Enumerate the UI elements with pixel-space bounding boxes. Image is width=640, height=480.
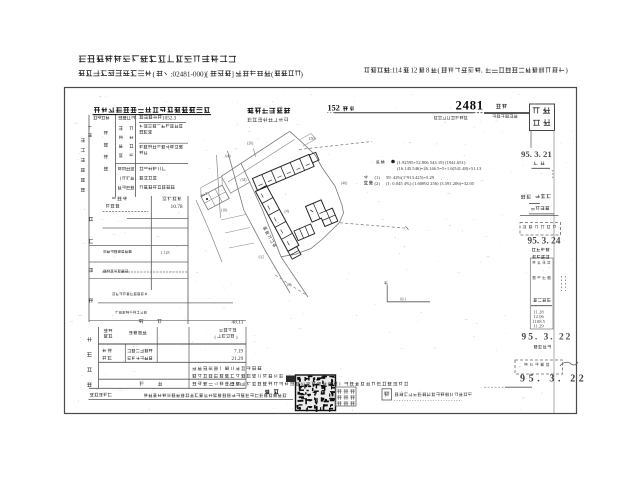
svg-text:(6): (6) bbox=[287, 283, 292, 287]
svg-text:152: 152 bbox=[328, 104, 340, 113]
svg-text:(1.92595+52.806 543.19) (1941.: (1.92595+52.806 543.19) (1941.651) bbox=[397, 160, 466, 165]
svg-text:8: 8 bbox=[426, 68, 430, 75]
svg-text:615: 615 bbox=[259, 256, 265, 260]
svg-text:150: 150 bbox=[309, 136, 315, 141]
svg-text:(2): (2) bbox=[375, 181, 381, 186]
svg-text:12: 12 bbox=[411, 68, 418, 75]
svg-text:7.19: 7.19 bbox=[234, 348, 243, 354]
svg-text:(34): (34) bbox=[241, 178, 248, 182]
svg-text:11.29: 11.29 bbox=[534, 324, 545, 329]
svg-text:,: , bbox=[481, 68, 483, 75]
svg-text:42.19: 42.19 bbox=[229, 382, 241, 388]
svg-text:60.1: 60.1 bbox=[400, 298, 406, 302]
svg-text:640: 640 bbox=[225, 155, 231, 159]
svg-text::02481-000)[: :02481-000)[ bbox=[171, 70, 210, 78]
svg-text:95. 3. 22: 95. 3. 22 bbox=[520, 374, 587, 385]
svg-text:(40): (40) bbox=[341, 182, 348, 186]
svg-text:95. 3. 22: 95. 3. 22 bbox=[522, 332, 573, 342]
svg-text:59. 42%(1°913.425)=5.29: 59. 42%(1°913.425)=5.29 bbox=[386, 175, 435, 180]
svg-text:(4): (4) bbox=[285, 210, 290, 214]
svg-text:21.29: 21.29 bbox=[232, 356, 244, 362]
svg-text:(18): (18) bbox=[221, 209, 228, 213]
svg-text:95. 3. 21: 95. 3. 21 bbox=[521, 149, 552, 159]
svg-text:(1): (1) bbox=[375, 175, 381, 180]
svg-text:10.78: 10.78 bbox=[171, 204, 183, 210]
svg-text:): ) bbox=[566, 68, 568, 75]
svg-text:1052.3: 1052.3 bbox=[162, 116, 177, 122]
svg-text:(16.145.546)=26.146.5=5+1.6(54: (16.145.546)=26.146.5=5+1.6(541.48)+51.1… bbox=[397, 166, 482, 171]
svg-text::114: :114 bbox=[390, 68, 402, 75]
svg-text:(1: 0.045 4%) (1.60892 256) (3: (1: 0.045 4%) (1.60892 256) (3.591.206)=… bbox=[386, 181, 475, 186]
svg-text:2481: 2481 bbox=[456, 98, 484, 112]
svg-text:]: ] bbox=[232, 70, 234, 78]
svg-text:(26): (26) bbox=[247, 142, 254, 146]
svg-text:95. 3. 24: 95. 3. 24 bbox=[528, 235, 561, 245]
svg-text:1.128: 1.128 bbox=[161, 250, 170, 255]
